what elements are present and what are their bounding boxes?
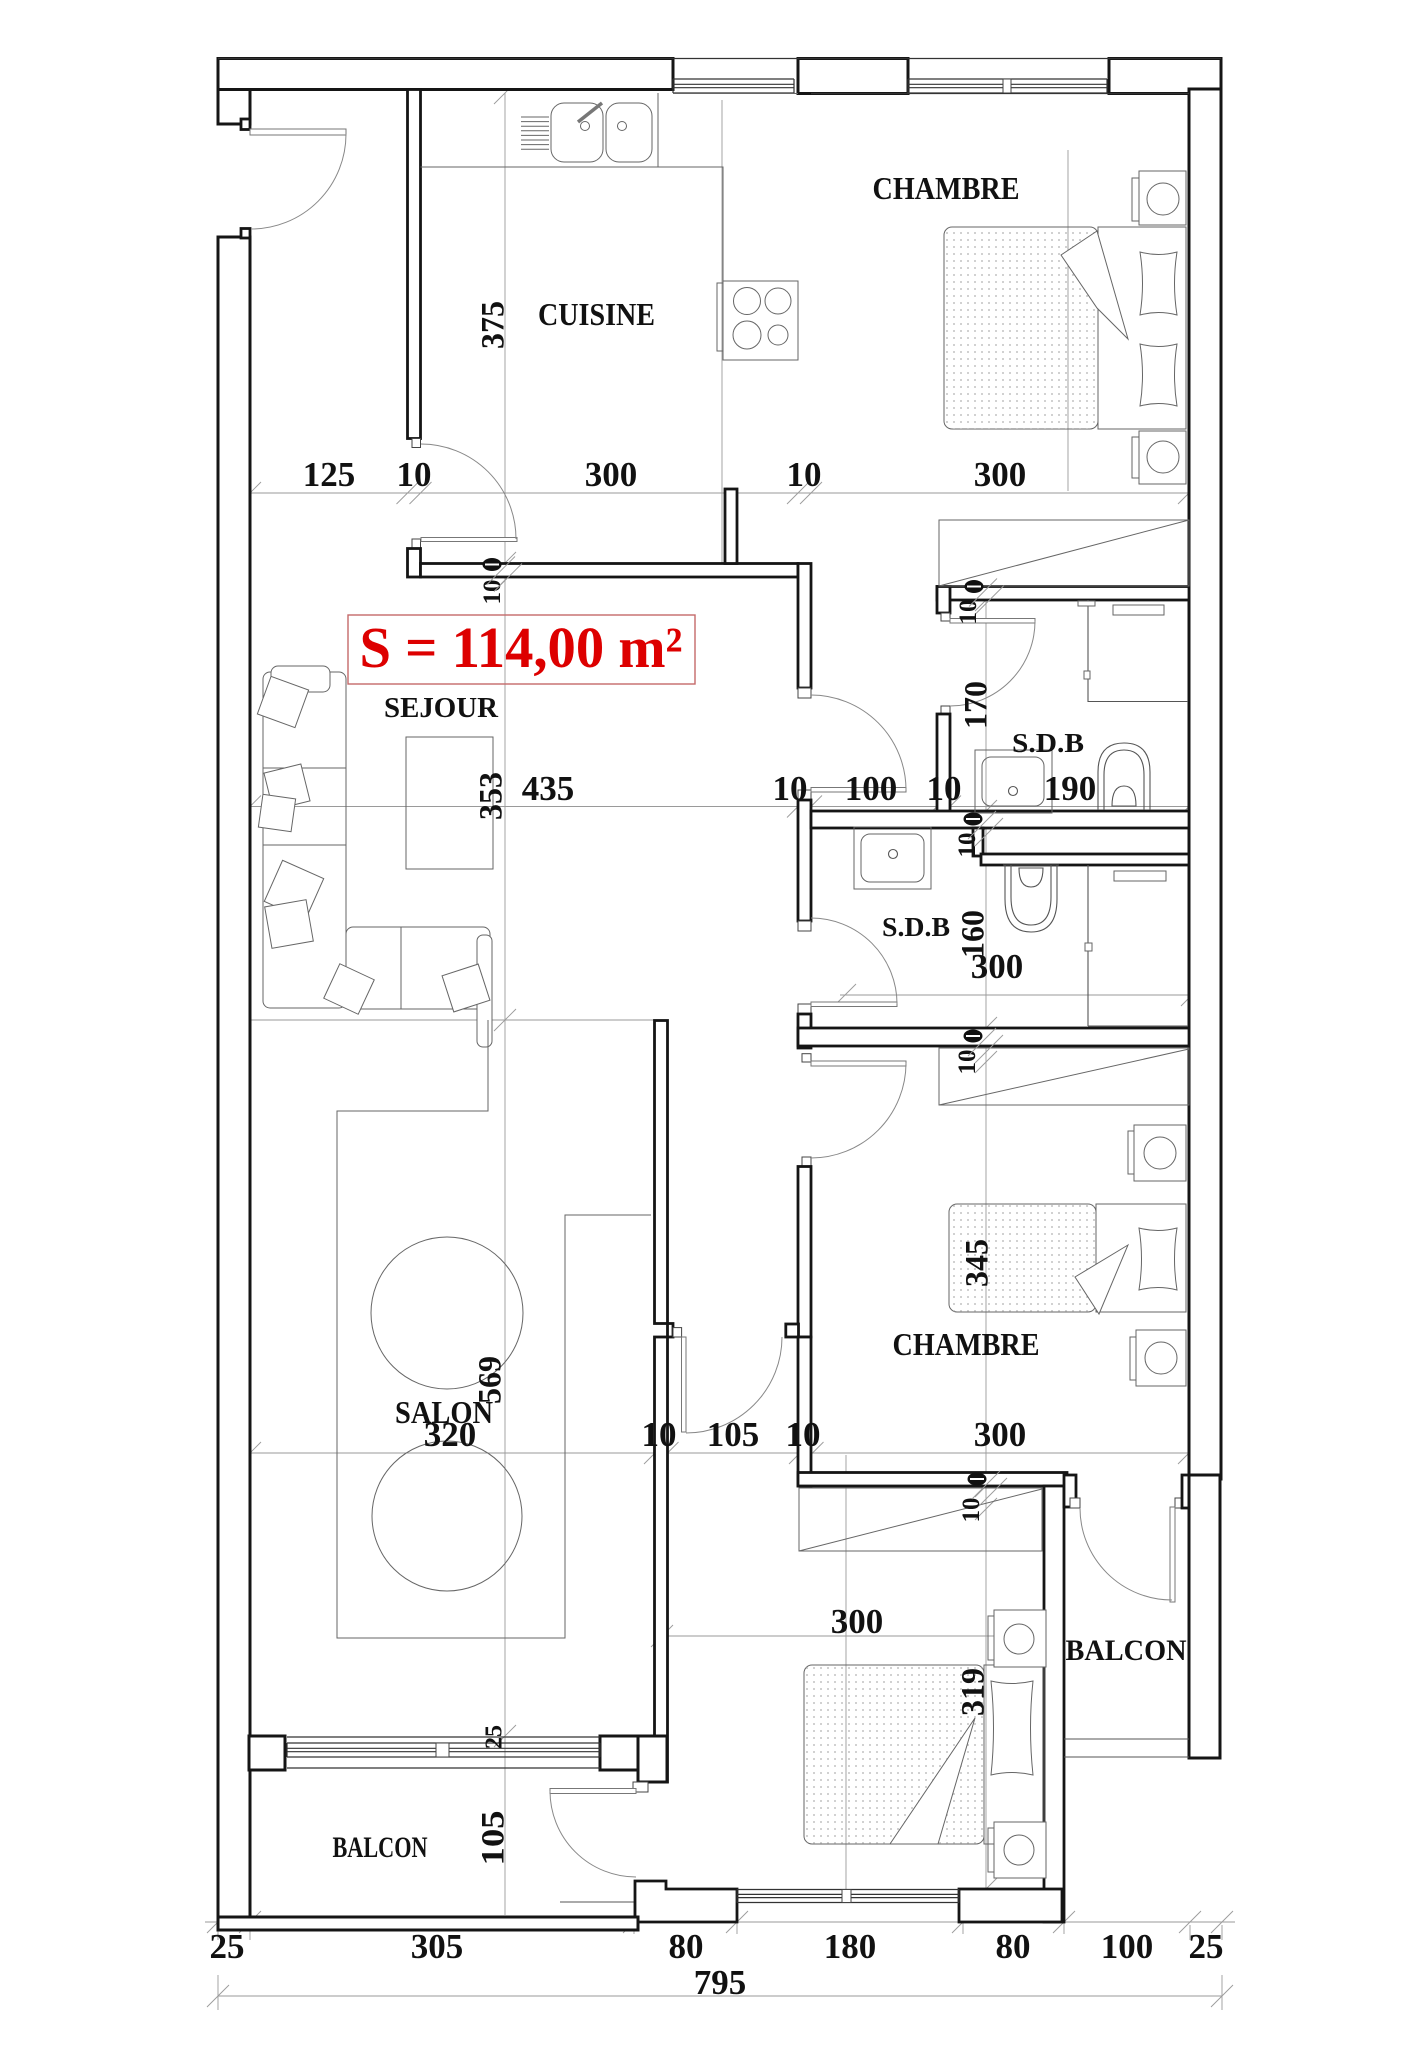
svg-text:125: 125 — [303, 455, 356, 494]
svg-text:CUISINE: CUISINE — [538, 296, 655, 332]
svg-text:10: 10 — [958, 1498, 985, 1523]
svg-text:345: 345 — [960, 1239, 996, 1287]
svg-text:CHAMBRE: CHAMBRE — [873, 170, 1020, 206]
svg-text:795: 795 — [694, 1963, 747, 2002]
svg-text:353: 353 — [474, 772, 510, 820]
svg-text:180: 180 — [824, 1927, 877, 1966]
svg-text:190: 190 — [1044, 769, 1097, 808]
svg-text:10: 10 — [786, 1415, 821, 1454]
svg-text:300: 300 — [831, 1602, 884, 1641]
svg-text:320: 320 — [424, 1415, 477, 1454]
svg-text:105: 105 — [476, 1811, 512, 1866]
svg-text:10: 10 — [642, 1415, 677, 1454]
svg-text:305: 305 — [411, 1927, 464, 1966]
svg-text:10: 10 — [954, 833, 981, 858]
svg-text:10: 10 — [954, 1050, 981, 1075]
svg-text:10: 10 — [787, 455, 822, 494]
svg-text:25: 25 — [482, 1725, 508, 1749]
svg-text:80: 80 — [996, 1927, 1031, 1966]
svg-text:319: 319 — [956, 1668, 992, 1716]
svg-text:105: 105 — [707, 1415, 760, 1454]
svg-text:BALCON: BALCON — [1066, 1634, 1187, 1667]
svg-text:10: 10 — [927, 769, 962, 808]
svg-text:BALCON: BALCON — [333, 1831, 428, 1864]
svg-text:435: 435 — [522, 769, 575, 808]
svg-text:300: 300 — [974, 1415, 1027, 1454]
svg-text:S.D.B: S.D.B — [882, 912, 950, 942]
svg-text:170: 170 — [959, 681, 995, 729]
svg-text:10: 10 — [773, 769, 808, 808]
svg-text:300: 300 — [974, 455, 1027, 494]
svg-text:S = 114,00 m²: S = 114,00 m² — [360, 615, 683, 680]
svg-text:375: 375 — [476, 301, 512, 349]
svg-text:CHAMBRE: CHAMBRE — [893, 1326, 1040, 1362]
svg-text:25: 25 — [210, 1927, 245, 1966]
svg-text:160: 160 — [956, 910, 992, 958]
svg-text:25: 25 — [1189, 1927, 1224, 1966]
svg-text:100: 100 — [845, 769, 898, 808]
svg-text:10: 10 — [397, 455, 432, 494]
svg-text:SEJOUR: SEJOUR — [384, 692, 499, 724]
svg-text:300: 300 — [585, 455, 638, 494]
svg-text:569: 569 — [473, 1356, 509, 1404]
svg-text:100: 100 — [1101, 1927, 1154, 1966]
svg-text:S.D.B: S.D.B — [1012, 728, 1084, 758]
svg-text:80: 80 — [669, 1927, 704, 1966]
